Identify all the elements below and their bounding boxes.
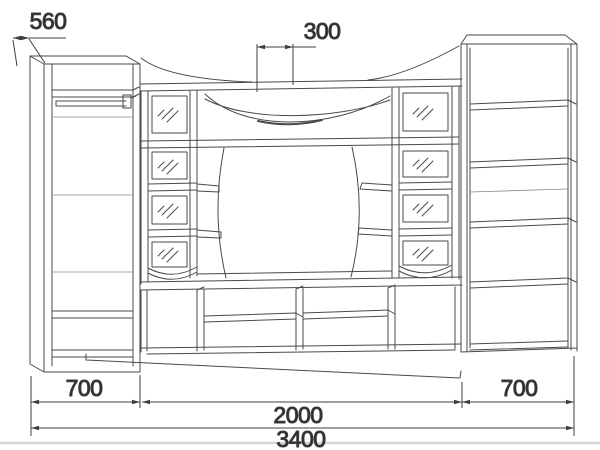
glass-hatch-icon	[158, 160, 178, 174]
glass-hatch-icon	[158, 248, 178, 262]
bookcase-shelf	[470, 100, 576, 110]
left-wing-curve	[141, 58, 252, 82]
glass-door	[152, 242, 187, 267]
bookcase-shelf	[470, 158, 576, 168]
dim-label-right-width: 700	[501, 375, 538, 401]
dim-label-top-offset: 300	[304, 18, 341, 44]
dim-arrow	[566, 400, 574, 404]
dimension-center-2000: 2000	[142, 382, 462, 428]
dimension-depth-560: 560	[13, 8, 66, 66]
dimensions: 560 300 700 2000 700	[13, 8, 574, 450]
right-column-curved-apron	[399, 265, 452, 278]
glass-hatch-icon	[413, 158, 433, 172]
dim-label-depth: 560	[30, 8, 67, 34]
left-wardrobe-section	[30, 56, 140, 372]
base-top	[140, 277, 462, 290]
dimension-total-3400: 3400	[31, 426, 574, 450]
dim-arrow	[13, 36, 21, 40]
glass-door	[152, 96, 187, 133]
base-side-left	[141, 290, 147, 352]
plinth-edge	[86, 354, 461, 378]
bookcase-back-joint	[470, 189, 568, 192]
decorative-wave	[205, 94, 390, 122]
tv-niche	[197, 147, 392, 278]
dim-arrow	[257, 45, 265, 49]
glass-hatch-icon	[413, 106, 433, 120]
dim-label-total-width: 3400	[276, 426, 325, 450]
glass-door	[152, 196, 187, 224]
niche-right-curve	[351, 147, 359, 277]
hanging-rail	[56, 101, 126, 106]
dimension-right-700: 700	[462, 356, 574, 436]
dim-arrow	[454, 400, 462, 404]
dimension-left-700: 700	[31, 375, 140, 436]
base-bottom	[141, 344, 461, 354]
drawing-canvas: 560 300 700 2000 700	[0, 0, 600, 450]
base-shelf	[204, 313, 303, 322]
bookcase-shelf	[470, 218, 576, 228]
extension-line	[257, 44, 293, 92]
base-divider	[197, 287, 204, 351]
glass-hatch-icon	[413, 247, 433, 261]
center-section	[86, 46, 462, 378]
back-panel-joints	[52, 117, 133, 272]
dim-arrow	[31, 400, 39, 404]
wardrobe-lower-shelf	[52, 311, 133, 318]
glass-hatch-icon	[158, 204, 178, 218]
dim-label-center-width: 2000	[273, 402, 322, 428]
right-glass-column	[392, 86, 459, 279]
corner-shelf	[360, 183, 392, 191]
dim-arrow	[566, 426, 574, 430]
left-glass-column	[141, 91, 197, 284]
wardrobe-bottom-shelf	[52, 350, 133, 357]
glass-hatch-icon	[413, 202, 433, 216]
right-bookcase-section	[461, 35, 577, 352]
base-divider	[296, 286, 303, 350]
glass-door	[403, 241, 448, 265]
bookcase-frame	[461, 35, 577, 352]
dim-arrow	[21, 36, 29, 40]
center-top-shelf	[140, 79, 462, 91]
corner-shelf	[358, 228, 392, 236]
upper-long-shelf	[141, 137, 459, 148]
right-wing-curve	[368, 46, 459, 80]
dim-arrow	[142, 400, 150, 404]
glass-hatch-icon	[158, 108, 178, 122]
dim-arrow	[285, 45, 293, 49]
base-shelf	[303, 310, 395, 319]
right-column-shelves	[399, 182, 452, 236]
corner-shelf	[197, 230, 221, 238]
niche-bottom-shelf	[197, 271, 392, 274]
base-cabinet	[86, 277, 462, 378]
glass-door	[152, 152, 187, 179]
bookcase-shelf	[470, 278, 576, 288]
base-side-right	[455, 286, 461, 349]
niche-left-curve	[218, 148, 226, 278]
dim-arrow	[132, 400, 140, 404]
base-divider	[388, 285, 395, 349]
corner-shelf	[197, 184, 219, 192]
glass-door	[403, 151, 448, 177]
glass-door	[403, 93, 448, 131]
wall-unit-drawing: 560 300 700 2000 700	[0, 0, 600, 450]
dim-arrow	[31, 426, 39, 430]
glass-door	[403, 195, 448, 222]
dim-label-left-width: 700	[66, 375, 103, 401]
dim-arrow	[462, 400, 470, 404]
